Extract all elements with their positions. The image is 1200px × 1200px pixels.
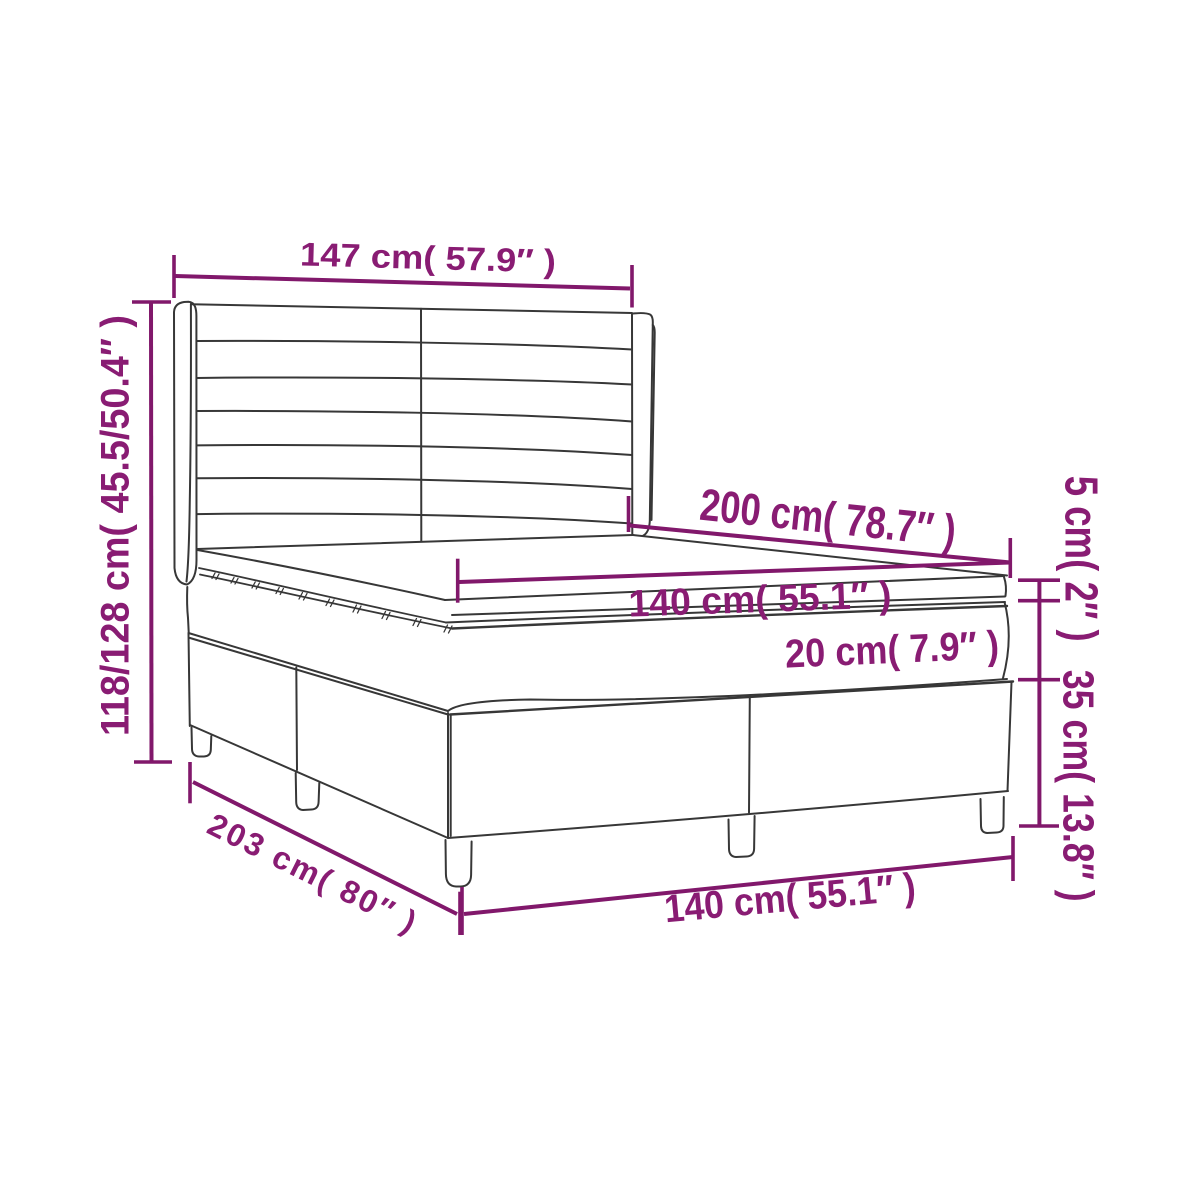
svg-text:35 cm( 13.8″ ): 35 cm( 13.8″ ): [1054, 670, 1103, 902]
svg-text:20 cm( 7.9″ ): 20 cm( 7.9″ ): [784, 623, 1000, 676]
svg-text:147 cm( 57.9″ ): 147 cm( 57.9″ ): [300, 235, 557, 279]
svg-text:5 cm( 2″ ): 5 cm( 2″ ): [1056, 476, 1108, 642]
svg-text:118/128 cm( 45.5/50.4″ ): 118/128 cm( 45.5/50.4″ ): [94, 315, 138, 736]
